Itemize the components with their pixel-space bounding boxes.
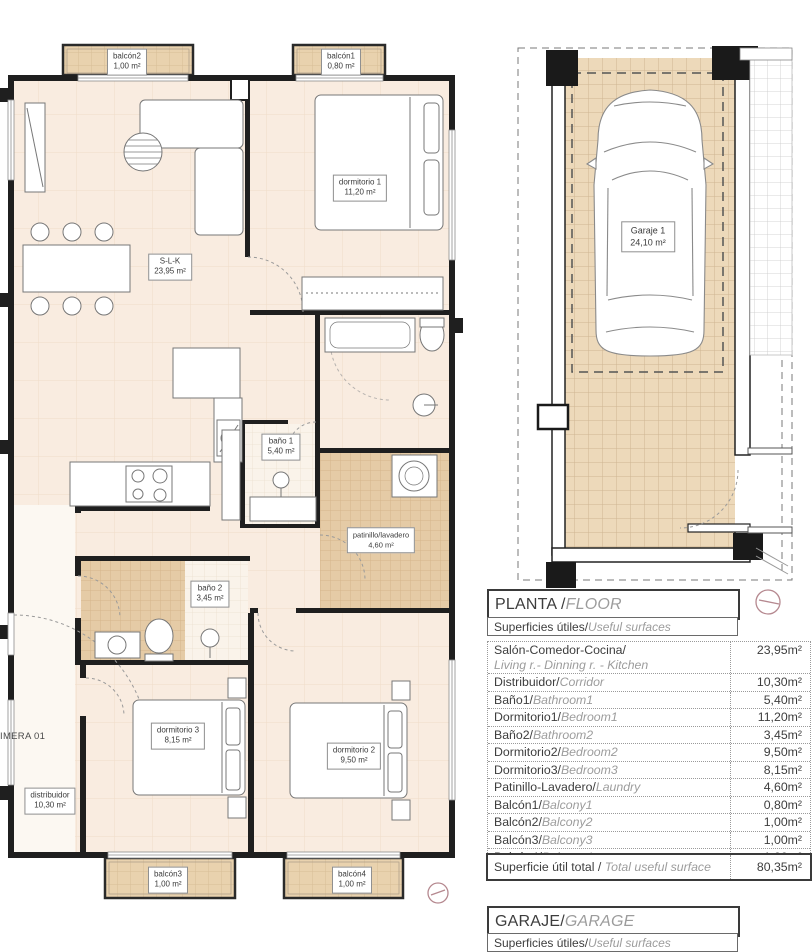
room-label-balcon2: balcón21,00 m²: [107, 49, 147, 76]
surface-row: Baño2/Bathroom23,45m²: [488, 727, 810, 745]
round-chair-icon: [124, 133, 162, 171]
hall-closet-icon: [222, 430, 240, 520]
surface-row: Salón-Comedor-Cocina/Living r.- Dinning …: [488, 642, 810, 674]
room-label-dormitorio1: dormitorio 111,20 m²: [333, 175, 387, 202]
garage-pillar: [538, 405, 568, 429]
surface-row: Distribuidor/Corridor10,30m²: [488, 674, 810, 692]
washer-icon: [392, 455, 437, 497]
reference-marker-icon: [756, 590, 780, 614]
surface-row: Dormitorio3/Bedroom38,15m²: [488, 762, 810, 780]
room-label-distribuidor: distribuidor10,30 m²: [24, 788, 75, 815]
surfaces-total-row: Superficie útil total / Total useful sur…: [486, 853, 812, 881]
garage-plan-drawing: [518, 46, 792, 614]
wardrobe-icon: [302, 277, 443, 310]
entry-pillar: [231, 79, 249, 100]
surface-row: Dormitorio1/Bedroom111,20m²: [488, 709, 810, 727]
bathtub-icon: [325, 318, 415, 352]
garaje-subheader: Superficies útiles/Useful surfaces: [487, 933, 738, 952]
planta-header: PLANTA / FLOOR: [487, 589, 740, 620]
surface-row: Balcón1/Balcony10,80m²: [488, 797, 810, 815]
bed-icon-dorm1: [315, 95, 443, 230]
room-label-balcon1: balcón10,80 m²: [321, 49, 361, 76]
room-label-slk: S-L-K23,95 m²: [148, 254, 192, 281]
vanity-icon-bano2: [95, 632, 140, 658]
plan-edge-text: IMERA 01: [0, 731, 45, 742]
surfaces-table: Salón-Comedor-Cocina/Living r.- Dinning …: [487, 641, 811, 867]
room-label-bano1: baño 15,40 m²: [261, 434, 300, 461]
surface-row: Baño1/Bathroom15,40m²: [488, 692, 810, 710]
toilet-icon-bano2: [145, 619, 173, 661]
room-label-dormitorio2: dormitorio 29,50 m²: [327, 743, 381, 770]
room-label-garaje1: Garaje 124,10 m²: [621, 221, 675, 252]
room-label-patinillo: patinillo/lavadero4,60 m²: [347, 527, 415, 553]
room-label-balcon3: balcón31,00 m²: [148, 867, 188, 894]
reference-marker-icon: [428, 883, 448, 903]
surface-row: Dormitorio2/Bedroom29,50m²: [488, 744, 810, 762]
apartment-plan: [0, 45, 463, 903]
surface-row: Balcón2/Balcony21,00m²: [488, 814, 810, 832]
room-label-dormitorio3: dormitorio 38,15 m²: [151, 723, 205, 750]
surface-row: Patinillo-Lavadero/Laundry4,60m²: [488, 779, 810, 797]
surface-row: Balcón3/Balcony31,00m²: [488, 832, 810, 850]
toilet-icon-bath1: [420, 318, 444, 351]
plan-sheet: balcón21,00 m² balcón10,80 m² dormitorio…: [0, 0, 812, 935]
planta-subheader: Superficies útiles/Useful surfaces: [487, 617, 738, 636]
fridge-icon: [173, 348, 240, 398]
bath-counter-icon: [250, 497, 316, 521]
room-label-bano2: baño 23,45 m²: [190, 581, 229, 608]
room-label-balcon4: balcón41,00 m²: [332, 867, 372, 894]
